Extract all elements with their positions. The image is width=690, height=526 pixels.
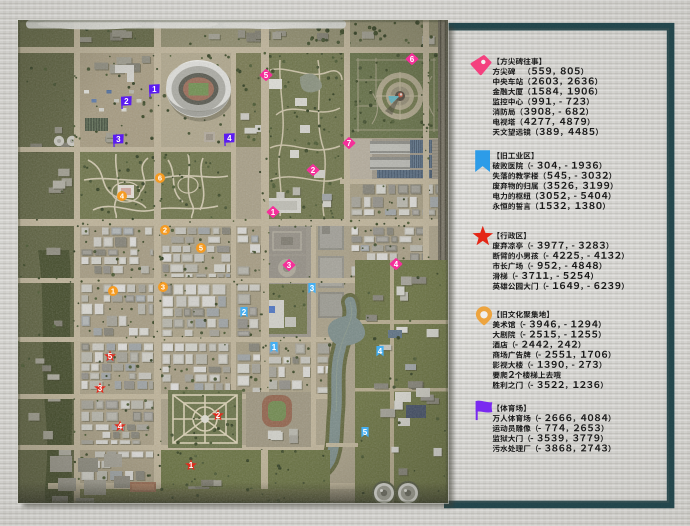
svg-text:1: 1 xyxy=(271,208,276,217)
svg-text:4: 4 xyxy=(227,134,232,143)
svg-text:2: 2 xyxy=(163,226,167,235)
svg-text:4: 4 xyxy=(378,347,383,356)
svg-text:7: 7 xyxy=(347,139,352,148)
svg-text:3: 3 xyxy=(310,284,315,293)
svg-text:1: 1 xyxy=(111,287,115,296)
svg-text:3: 3 xyxy=(287,261,292,270)
svg-text:3: 3 xyxy=(98,384,103,393)
svg-text:2: 2 xyxy=(242,308,247,317)
svg-text:2: 2 xyxy=(124,97,129,106)
svg-text:6: 6 xyxy=(158,174,162,183)
svg-text:3: 3 xyxy=(161,283,165,292)
svg-text:3: 3 xyxy=(116,135,121,144)
svg-text:2: 2 xyxy=(216,411,221,420)
svg-text:5: 5 xyxy=(199,244,203,253)
svg-text:5: 5 xyxy=(363,428,368,437)
svg-text:1: 1 xyxy=(152,85,157,94)
svg-text:1: 1 xyxy=(189,461,194,470)
svg-text:5: 5 xyxy=(108,352,113,361)
svg-text:4: 4 xyxy=(118,422,123,431)
svg-text:6: 6 xyxy=(410,55,415,64)
svg-text:2: 2 xyxy=(311,166,316,175)
svg-text:4: 4 xyxy=(394,260,399,269)
svg-text:5: 5 xyxy=(264,71,269,80)
svg-text:1: 1 xyxy=(272,343,277,352)
